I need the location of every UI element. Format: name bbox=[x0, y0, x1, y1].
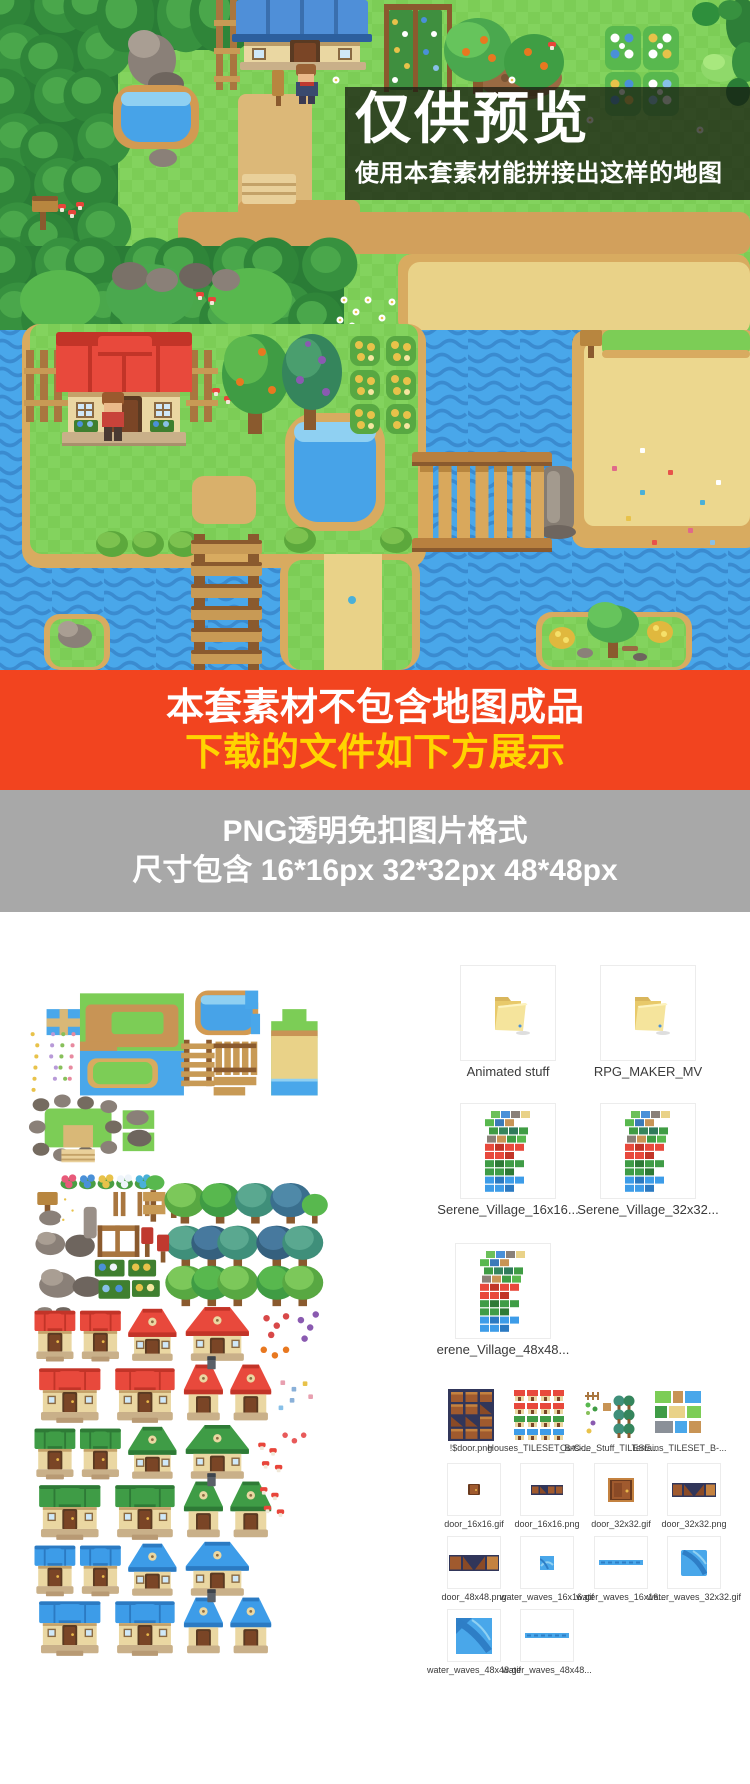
water-tile-icon bbox=[540, 1556, 554, 1570]
water-tile-icon bbox=[456, 1618, 492, 1654]
tileset-sheet-icon bbox=[617, 1108, 679, 1194]
file-thumb bbox=[653, 1390, 705, 1440]
file-thumb bbox=[667, 1536, 721, 1589]
file-label: water_waves_48x48... bbox=[492, 1665, 602, 1675]
file-label: door_32x32.png bbox=[639, 1519, 749, 1529]
folder-icon bbox=[483, 990, 533, 1036]
file-thumb bbox=[447, 1463, 501, 1516]
file-thumb bbox=[594, 1536, 648, 1589]
page-root: 仅供预览 使用本套素材能拼接出这样的地图 本套素材不包含地图成品 下载的文件如下… bbox=[0, 0, 750, 1784]
water-strip-icon bbox=[599, 1560, 643, 1565]
file-thumb bbox=[520, 1609, 574, 1662]
file-label: water_waves_32x32.gif bbox=[639, 1592, 749, 1602]
door-row-icon bbox=[449, 1555, 499, 1571]
file-label: RPG_MAKER_MV bbox=[560, 1064, 736, 1079]
door-row-icon bbox=[531, 1485, 563, 1495]
file-label: Serene_Village_32x32... bbox=[560, 1202, 736, 1217]
houses-sheet-icon bbox=[513, 1388, 565, 1442]
file-thumb bbox=[600, 1103, 696, 1199]
outside-sheet-icon bbox=[583, 1389, 635, 1441]
file-thumb bbox=[600, 965, 696, 1061]
tileset-sheet-icon bbox=[472, 1248, 534, 1334]
file-thumb bbox=[520, 1463, 574, 1516]
terrain-sheet-icon bbox=[653, 1389, 705, 1441]
file-grid: Animated stuff RPG_MAKER_MVSerene_Villag… bbox=[0, 0, 750, 1784]
file-thumb bbox=[455, 1243, 551, 1339]
file-thumb bbox=[583, 1390, 635, 1440]
folder-icon bbox=[623, 990, 673, 1036]
file-thumb bbox=[460, 1103, 556, 1199]
file-thumb bbox=[447, 1536, 501, 1589]
water-strip-icon bbox=[525, 1633, 569, 1638]
file-thumb bbox=[520, 1536, 574, 1589]
file-thumb bbox=[594, 1463, 648, 1516]
file-thumb bbox=[513, 1390, 565, 1440]
door-icon bbox=[608, 1478, 634, 1502]
water-tile-icon bbox=[681, 1550, 707, 1576]
file-thumb bbox=[447, 1609, 501, 1662]
file-label: erene_Village_48x48... bbox=[415, 1342, 591, 1357]
file-thumb bbox=[667, 1463, 721, 1516]
door-row-icon bbox=[672, 1483, 716, 1497]
file-thumb bbox=[448, 1390, 494, 1440]
door-sheet-icon bbox=[448, 1389, 494, 1441]
file-label: Terrains_TILESET_B-... bbox=[624, 1443, 734, 1453]
file-thumb bbox=[460, 965, 556, 1061]
door-icon bbox=[467, 1483, 481, 1496]
tileset-sheet-icon bbox=[477, 1108, 539, 1194]
